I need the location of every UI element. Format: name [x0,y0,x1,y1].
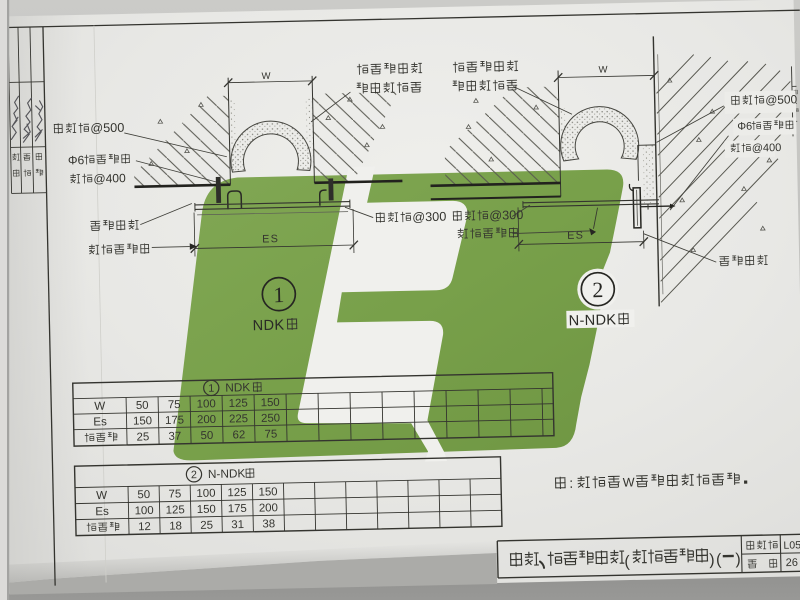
svg-text:37: 37 [168,431,181,443]
svg-text:200: 200 [197,414,216,426]
svg-text:150: 150 [261,397,280,409]
svg-text:100: 100 [135,505,154,517]
svg-text:25: 25 [136,431,149,443]
svg-text:N-NDK: N-NDK [208,466,246,481]
svg-text:@300: @300 [412,210,446,225]
svg-text:Es: Es [93,415,107,428]
svg-text:26: 26 [786,557,799,569]
svg-text:): ) [735,551,741,568]
svg-text:W: W [623,475,635,489]
svg-text:18: 18 [169,520,182,532]
svg-text:150: 150 [133,415,152,427]
svg-text:125: 125 [229,398,248,410]
svg-text:38: 38 [262,518,275,530]
svg-text:200: 200 [259,502,278,514]
svg-text:31: 31 [231,519,244,531]
svg-text:@500: @500 [90,121,124,136]
svg-text:75: 75 [168,399,181,411]
svg-text:Φ6: Φ6 [68,153,85,167]
svg-text:@300: @300 [489,208,523,223]
svg-text:150: 150 [197,504,216,516]
svg-text:L05JTJ: L05JTJ [783,539,800,552]
svg-text:125: 125 [166,504,185,516]
svg-text:75: 75 [168,488,181,500]
svg-text:): ) [709,552,715,569]
svg-text:Φ6: Φ6 [737,121,752,133]
svg-text:NDK: NDK [225,380,250,395]
svg-text:Es: Es [95,505,109,518]
svg-text:N-NDK: N-NDK [568,312,616,329]
svg-text:62: 62 [232,429,245,441]
svg-text:50: 50 [200,430,213,442]
svg-text:175: 175 [228,503,247,515]
svg-text:100: 100 [197,398,216,410]
svg-text:1: 1 [208,383,214,395]
svg-text::: : [569,475,573,491]
svg-text:W: W [261,71,270,82]
svg-text:@400: @400 [752,142,782,155]
svg-text:W: W [598,64,607,75]
svg-text:2: 2 [592,277,604,302]
svg-text:25: 25 [200,520,213,532]
svg-text:250: 250 [261,412,280,424]
svg-text:50: 50 [137,489,150,501]
svg-text:1: 1 [273,282,285,307]
svg-text:W: W [96,489,107,502]
svg-text:@400: @400 [93,171,126,186]
svg-text:125: 125 [227,487,246,499]
svg-text:225: 225 [229,413,248,425]
svg-text:12: 12 [138,521,151,533]
svg-text:75: 75 [264,429,277,441]
svg-text:W: W [94,400,105,413]
svg-text:NDK: NDK [253,318,285,335]
svg-text:@500: @500 [765,92,797,107]
svg-text:2: 2 [191,469,197,481]
svg-text:100: 100 [196,488,215,500]
svg-text:ES: ES [262,233,279,245]
svg-text:175: 175 [165,415,184,427]
svg-text:150: 150 [258,486,277,498]
svg-text:50: 50 [136,400,149,412]
